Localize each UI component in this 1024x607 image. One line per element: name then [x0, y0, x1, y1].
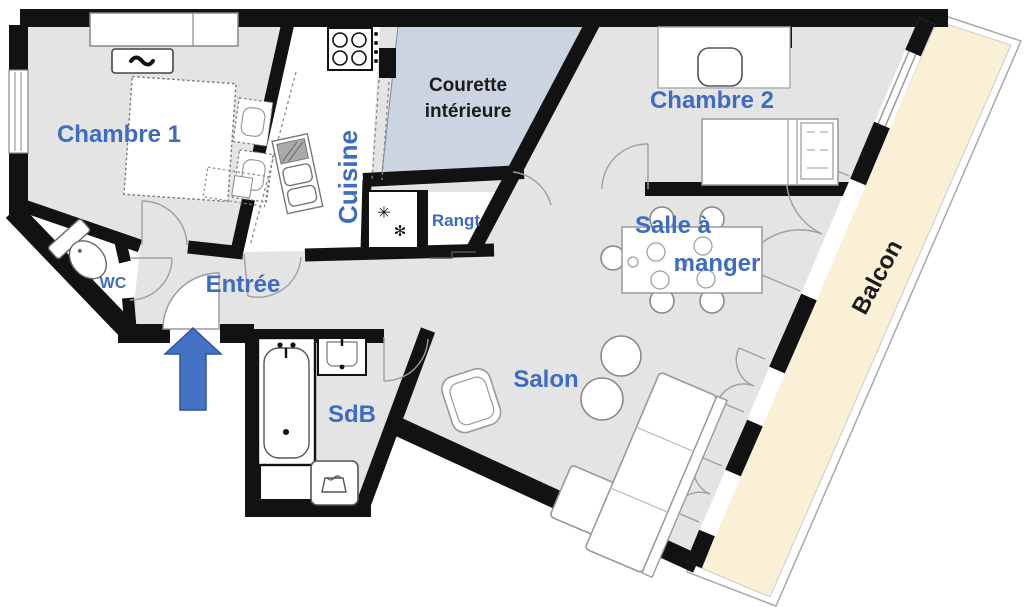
wall-kitchen-stub: [379, 48, 396, 78]
bathtub-icon: [258, 338, 315, 465]
desk-chair: [698, 48, 742, 86]
stove-icon: [328, 28, 378, 70]
room-label-cuisine: Cuisine: [333, 130, 363, 224]
washing-machine-icon: [311, 461, 358, 505]
room-label-chambre1: Chambre 1: [57, 121, 181, 148]
sink-icon: [318, 338, 366, 375]
room-label-courette-line1: Courette: [429, 75, 507, 96]
chambre1-left-window: [9, 70, 28, 153]
room-label-salon: Salon: [513, 366, 578, 393]
wall-courette-bottom: [363, 172, 524, 180]
room-label-salle-a-manger-line2: manger: [674, 250, 761, 277]
wall-wc-right-a: [120, 240, 125, 262]
wall-freezer-left: [365, 180, 367, 251]
snowflake-icon: ✻: [394, 223, 407, 240]
room-label-courette-line2: intérieure: [425, 101, 512, 122]
side-table: [581, 378, 623, 420]
side-table: [601, 336, 641, 376]
room-label-rangt: Rangt: [432, 211, 481, 230]
balcony-wall-seg5: [694, 533, 707, 565]
room-label-wc: WC: [100, 275, 127, 292]
freezer-icon: ✳ ✻: [368, 191, 418, 248]
room-label-entree: Entrée: [206, 271, 281, 298]
floorplan: ✳ ✻: [0, 0, 1024, 607]
vent-icon: [112, 49, 173, 73]
room-label-chambre2: Chambre 2: [650, 87, 774, 114]
snowflake-icon: ✳: [377, 205, 390, 222]
nightstand: [233, 98, 273, 146]
room-label-sdb: SdB: [328, 401, 376, 428]
wall-wc-right-b: [128, 298, 131, 334]
bathroom-floor-strip: [258, 462, 313, 504]
chambre1-top-window: [90, 13, 238, 46]
room-label-salle-a-manger-line1: Salle à: [635, 212, 712, 239]
single-bed: [702, 119, 838, 185]
